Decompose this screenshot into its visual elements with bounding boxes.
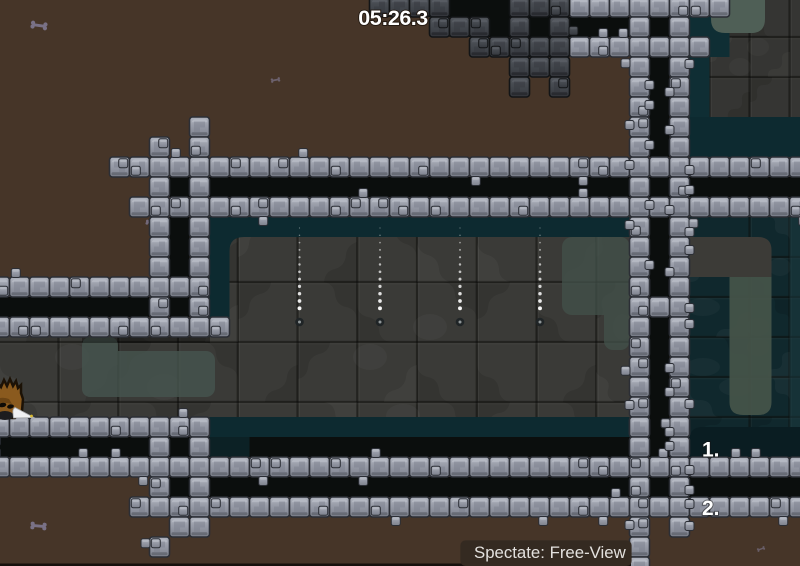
svg-text:05:26.3: 05:26.3 <box>358 6 428 30</box>
svg-text:1.: 1. <box>702 439 720 462</box>
svg-text:Spectate: Free-View: Spectate: Free-View <box>474 543 627 562</box>
svg-text:2.: 2. <box>702 497 720 520</box>
